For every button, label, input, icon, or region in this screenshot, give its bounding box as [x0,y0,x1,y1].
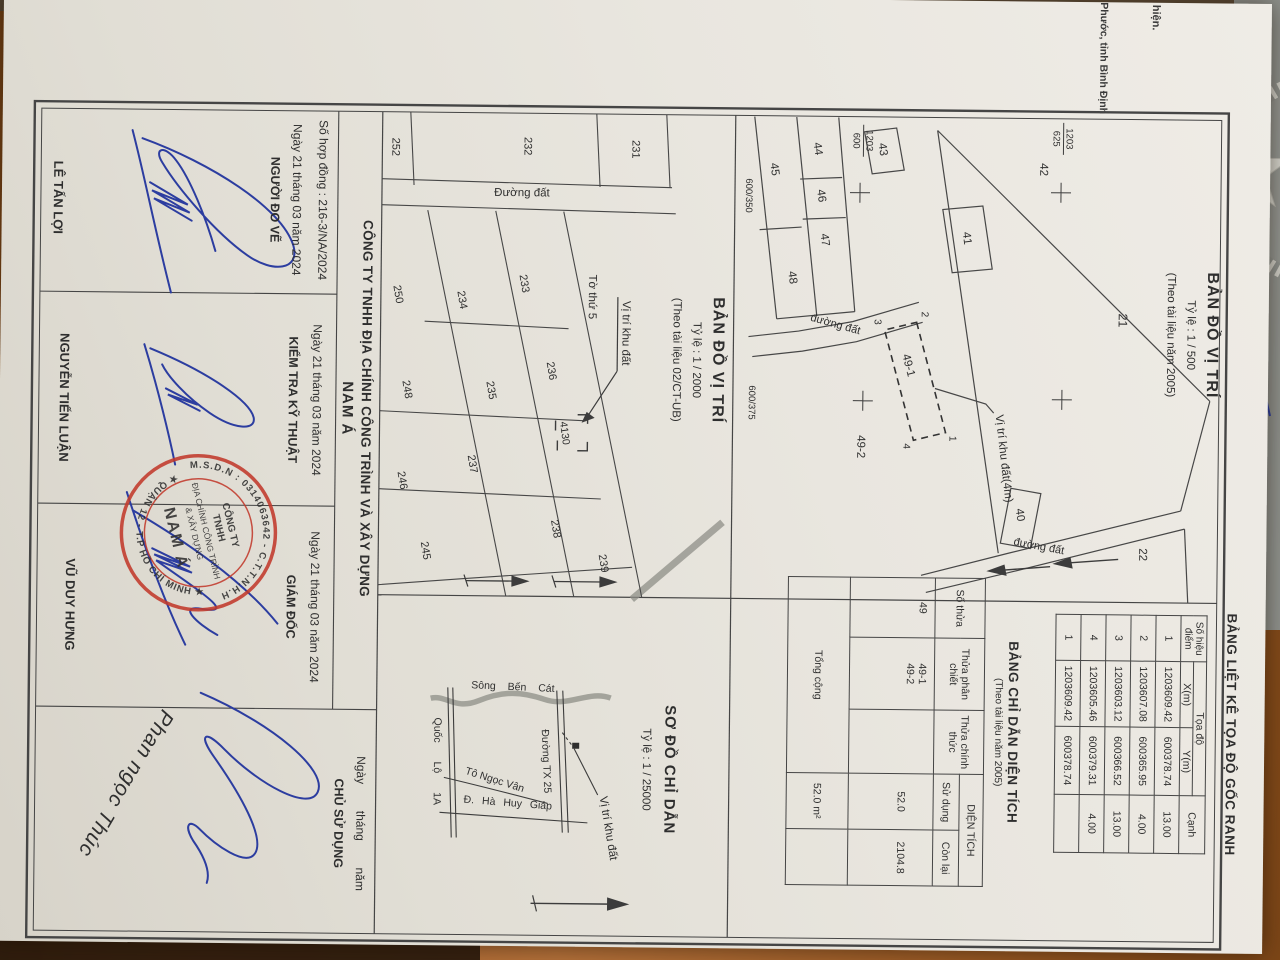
parcel-label: 22 [1136,548,1148,561]
cell-empty [785,828,848,885]
parcel-label: 252 [389,138,401,156]
area-col-split: Thửa phân chiết [934,638,985,711]
map2-scale: Tỷ lệ : 1 / 2000 [690,322,703,398]
parcel-label: 47 [818,233,832,247]
parcel-label: 250 [390,284,405,304]
cell-split-2: 49-2 [904,640,917,707]
cell: 1203609.42 [1155,661,1181,727]
map1-target-parcel-dashed [883,322,946,441]
sketch-site-label: Vị trí khu đất [597,796,620,862]
parcel-label: 40 [1013,508,1027,522]
parcel-label: 236 [544,361,559,381]
coord-table: Số hiệu điểm Tọa độ Cạnh X(m) Y(m) 1 120… [1053,614,1207,855]
river-line [431,692,611,705]
cell: 3 [1106,615,1131,661]
table-row: 49 49-1 49-2 52.0 2104.8 [847,577,935,886]
map1-road-arrows [988,557,1118,576]
cell: 600366.52 [1104,727,1130,795]
cell: 4.00 [1129,795,1155,853]
coord-col-point: Số hiệu điểm [1181,616,1207,662]
date-land-user: Ngày tháng năm [353,756,368,891]
cell: 600378.74 [1054,726,1080,794]
grid-label: 625 [1050,131,1061,147]
parcel-label: 232 [521,137,533,155]
vertex-label: 4 [900,443,911,449]
vertex-label: 1 [946,436,957,442]
cell: 1203607.08 [1130,661,1156,727]
company-name: NAM Á [338,381,356,435]
parcel-label: 46 [814,189,828,203]
total-value: 52.0 m² [786,772,849,829]
area-table-subtitle: (Theo tài liệu năm 2005) [992,678,1004,787]
company-stamp: M.S.D.N : 0314063642 - C.T.T.N.H.H ★ QUẬ… [106,440,291,625]
parcel-label: 49-1 [899,353,916,378]
table-row: 1 1203609.42 600378.74 [1054,614,1081,852]
cell-split-1: 49-1 [916,640,929,707]
parcel-label: 49-2 [854,435,866,458]
cell: 600378.74 [1154,727,1180,795]
date-surveyor: Ngày 21 tháng 03 năm 2024 [289,124,305,276]
table-row: 1 1203609.42 600378.74 13.00 [1154,615,1181,853]
cell: 13.00 [1154,795,1180,853]
map2-site-label: Vị trí khu đất [619,301,632,366]
parcel-label: 45 [767,162,781,176]
area-col-parcel: Số thửa [935,578,986,639]
cell: 1203605.46 [1080,661,1106,727]
grid-label: 600 [850,133,861,149]
parcel-label: 248 [399,379,414,399]
parcel-label: 43 [876,142,890,156]
vertex-label: 3 [872,319,883,325]
date-inspector: Ngày 21 tháng 03 năm 2024 [309,324,325,476]
area-col-remain: Còn lại [932,830,959,886]
parcel-label: 235 [483,380,498,400]
parcel-label: 44 [811,142,825,157]
cell: 2104.8 [847,829,933,886]
coord-col-x: X(m) [1180,662,1194,728]
table-row-total: Tổng cộng 52.0 m² [785,576,850,885]
signature-land-user [188,693,320,884]
parcel-label: 42 [1037,163,1049,176]
map2-sheet-label: Tờ thứ 5 [586,275,598,320]
map2-main-road [632,521,723,600]
map1-parcel-labels: 21 22 42 41 40 43 44 45 46 47 48 49-1 49… [763,141,1152,561]
sketch-roads [439,687,599,839]
grid-label: 1203 [1063,128,1074,149]
name-director: VŨ DUY HƯNG [62,558,78,650]
parcel-label: 234 [454,290,469,310]
date-director: Ngày 21 tháng 03 năm 2024 [307,531,323,683]
map1-road-label-2: đường đất [809,312,862,337]
map1-road-label: đường đất [1013,536,1066,557]
cell-official-empty [848,709,934,774]
parcel-label: 239 [596,553,611,573]
road-label-tnv: Tô Ngọc Vân [464,765,526,795]
map1-location-map: 1203 625 1203 600 600/350 600/375 21 22 … [739,116,1213,603]
survey-document: hiện. Phước, tỉnh Bình Định [0,0,1272,954]
grid-label: 1203 [863,130,874,151]
cell: 4 [1081,615,1106,661]
table-row: 4 1203605.46 600379.31 4.00 [1079,615,1106,853]
cell: 1 [1156,615,1181,661]
map2-source: (Theo tài liệu 02/CT-UB) [670,298,683,422]
photo-of-survey-document: hiện. Phước, tỉnh Bình Định [0,0,1280,960]
parcel-label: 231 [629,140,641,158]
cell: 49 [850,577,936,638]
cell: 52.0 [848,773,934,830]
cell: 600365.95 [1129,727,1155,795]
coord-col-y: Y(m) [1179,728,1193,796]
vertex-label: 2 [919,312,930,318]
parcel-label: 246 [394,470,409,490]
grid-label: 600/375 [746,385,757,419]
cell: 1203603.12 [1105,661,1131,727]
table-row: 3 1203603.12 600366.52 13.00 [1104,615,1131,853]
cell: 2 [1131,615,1156,661]
parcel-label: 245 [418,541,433,561]
sketch-north-arrow [530,895,627,912]
coord-col-edge: Cạnh [1179,796,1206,854]
sketch-title: SƠ ĐỒ CHỈ DẪN [660,705,678,834]
parcel-label: 238 [548,519,563,539]
coord-table-title: BẢNG LIỆT KÊ TỌA ĐỘ GỐC RANH [1222,613,1240,855]
map1-source: (Theo tài liệu năm 2005) [1164,273,1177,398]
map1-title: BẢN ĐỒ VỊ TRÍ [1202,272,1221,398]
coord-col-group: Tọa độ [1192,662,1206,796]
parcel-label: 48 [785,270,799,284]
road-label-ql1a: Quốc Lộ 1A [431,718,444,806]
map1-scale: Tỷ lệ : 1 / 500 [1184,300,1197,370]
cell: 13.00 [1104,795,1130,853]
parcel-label: 21 [1116,313,1130,327]
grid-label: 600/350 [743,178,754,212]
area-col-official: Thửa chính thức [933,710,984,775]
map1-site-label: Vị trí khu đất(4m) [993,414,1015,503]
area-table-title: BẢNG CHỈ DẪN DIỆN TÍCH [1004,641,1021,823]
cell: 1 [1056,614,1081,660]
map2-target-parcel: 4130 [557,421,572,446]
handwritten-name: Phan ngọc Thúc [73,706,178,861]
road-label-hhg: Đ. Hà Huy Giáp [463,794,552,813]
map2-title: BẢN ĐỒ VỊ TRÍ [708,297,727,423]
name-surveyor: LÊ TẤN LỢI [51,161,67,234]
map2-parcel-labels: 231 232 252 233 234 250 236 235 248 237 … [385,136,642,574]
map2-parcel-lines [378,112,677,598]
cell: 600379.31 [1079,727,1105,795]
role-land-user: CHỦ SỬ DỤNG [331,778,346,868]
parcel-label: 233 [517,274,532,294]
table-row: 2 1203607.08 600365.95 4.00 [1129,615,1156,853]
contract-number: Số hợp đồng : 216-3/NA/2024 [315,120,331,280]
sketch-site-marker [572,743,579,749]
parcel-label: 237 [465,454,480,474]
area-table: Số thửa Thửa phân chiết Thửa chính thức … [785,576,986,887]
cell [1054,794,1080,852]
map2-road-label: Đường đất [494,187,550,200]
river-label: Sông Bến Cát [471,679,555,695]
total-label: Tổng cộng [786,576,850,773]
signature-inspector [143,344,255,465]
name-inspector: NGUYỄN TIẾN LUẬN [56,333,72,462]
cell: 4.00 [1079,795,1105,853]
role-director: GIÁM ĐỐC [283,575,298,639]
sketch-scale: Tỷ lệ : 1 / 25000 [640,728,653,811]
area-col-group: DIỆN TÍCH [958,774,983,886]
map1-vertex-labels: 2 3 1 4 [870,311,958,450]
parcel-label: 41 [960,231,974,245]
guide-sketch: Đường TX 25 Quốc Lộ 1A Đ. Hà Huy Giáp Tô… [428,679,629,913]
role-surveyor: NGƯỜI ĐO VẼ [267,157,282,243]
road-label-tx25: Đường TX 25 [539,729,554,794]
role-inspector: KIỂM TRA KỸ THUẬT [285,336,300,463]
cell: 1203609.42 [1055,660,1081,726]
area-col-used: Sử dụng [933,774,960,830]
